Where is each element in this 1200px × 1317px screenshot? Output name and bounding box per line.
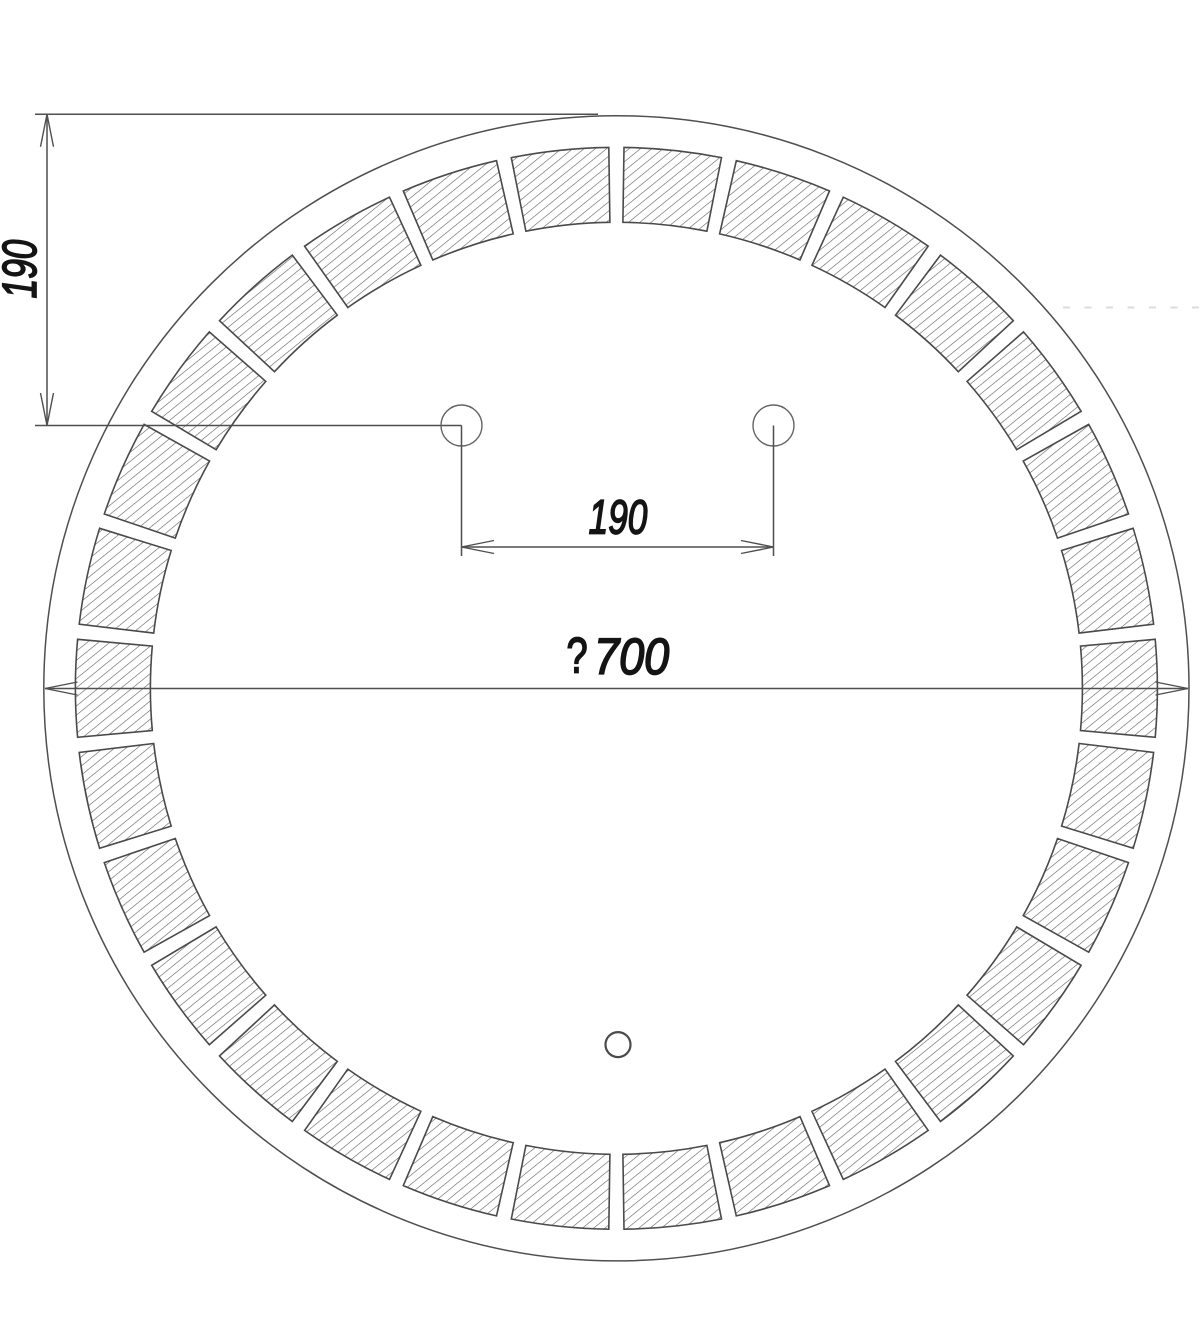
svg-text:700: 700 xyxy=(594,628,669,685)
svg-text:?: ? xyxy=(567,629,588,684)
svg-text:190: 190 xyxy=(589,490,648,544)
svg-text:190: 190 xyxy=(0,239,46,298)
